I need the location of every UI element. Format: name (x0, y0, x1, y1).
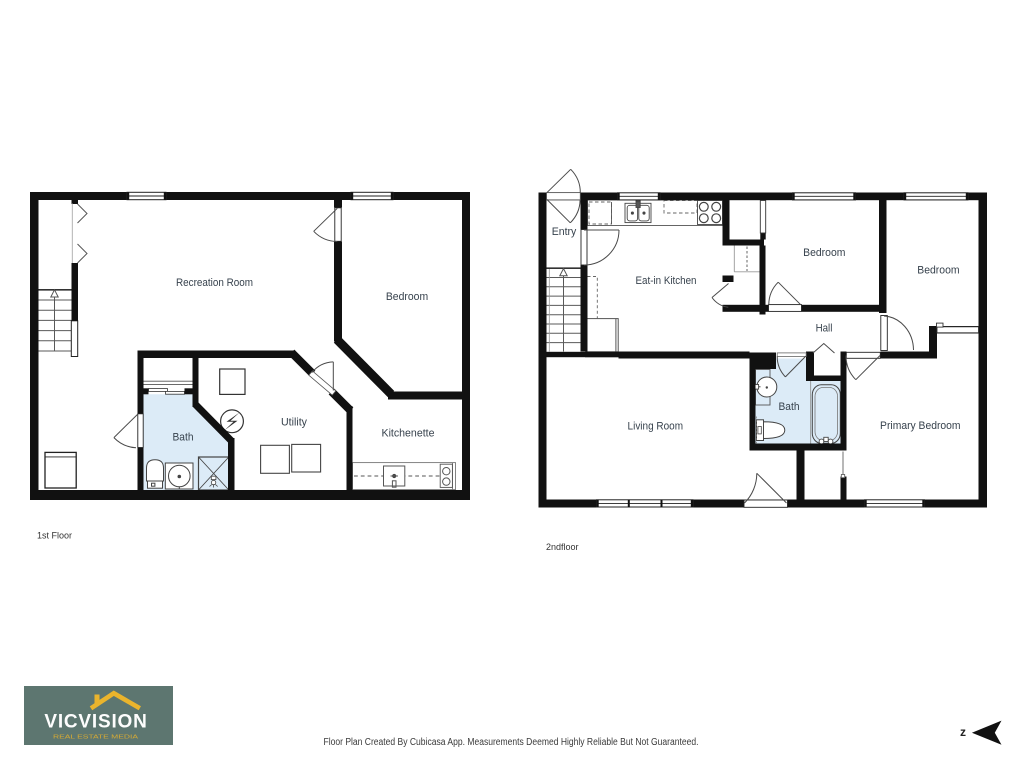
svg-text:Bedroom: Bedroom (386, 291, 428, 303)
svg-text:z: z (960, 725, 966, 739)
svg-text:2ndfloor: 2ndfloor (546, 542, 579, 552)
svg-text:Bedroom: Bedroom (803, 247, 845, 259)
svg-text:Eat-in Kitchen: Eat-in Kitchen (636, 275, 697, 287)
svg-text:Recreation Room: Recreation Room (176, 277, 253, 289)
svg-text:1st Floor: 1st Floor (37, 531, 72, 541)
svg-text:Utility: Utility (281, 417, 307, 429)
svg-text:Primary Bedroom: Primary Bedroom (880, 420, 961, 432)
svg-text:Living Room: Living Room (628, 421, 684, 433)
svg-text:Floor Plan Created By Cubicasa: Floor Plan Created By Cubicasa App. Meas… (324, 737, 699, 748)
svg-text:REAL ESTATE MEDIA: REAL ESTATE MEDIA (53, 734, 139, 740)
svg-text:Bath: Bath (779, 401, 800, 413)
svg-text:Bedroom: Bedroom (917, 265, 959, 277)
svg-text:Entry: Entry (552, 226, 577, 238)
svg-text:Bath: Bath (173, 432, 194, 444)
svg-text:VICVISION: VICVISION (44, 712, 147, 733)
svg-text:Kitchenette: Kitchenette (382, 428, 435, 440)
svg-text:Hall: Hall (816, 323, 833, 335)
